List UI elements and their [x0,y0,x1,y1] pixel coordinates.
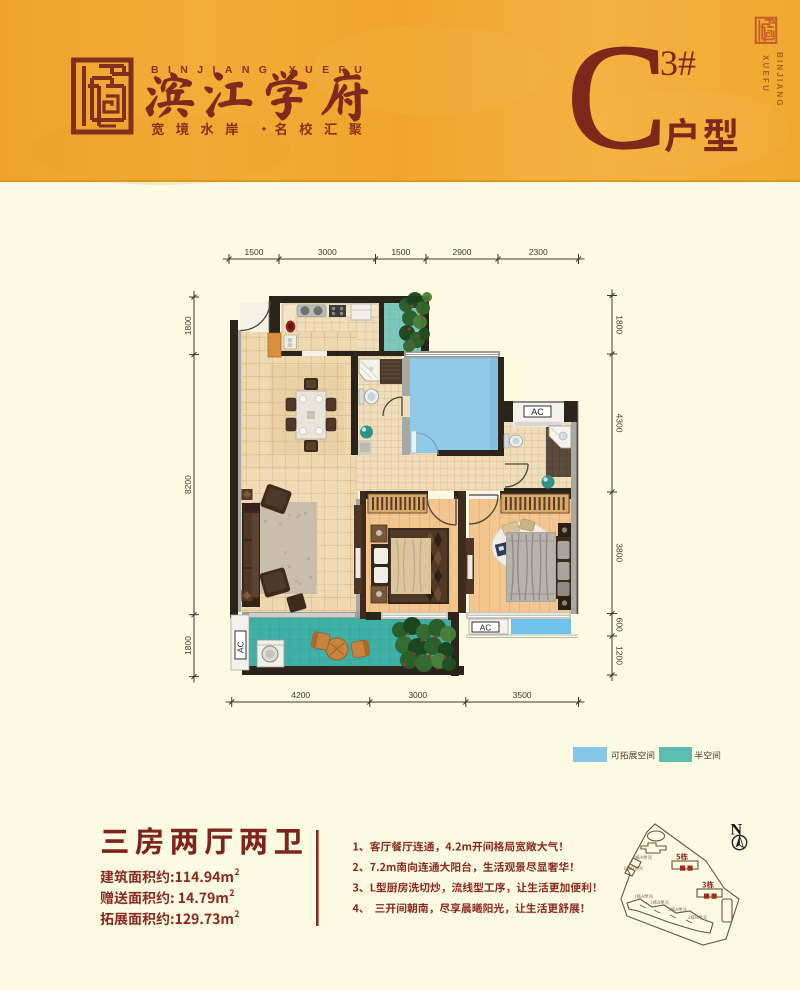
svg-text:1500: 1500 [391,247,410,257]
svg-text:1800: 1800 [615,315,625,334]
svg-text:3#: 3# [660,43,696,83]
svg-text:1800: 1800 [183,636,193,655]
svg-text:600: 600 [615,618,625,632]
svg-text:AC: AC [480,623,492,633]
svg-text:1800: 1800 [183,316,193,335]
svg-text:AC: AC [236,641,246,653]
svg-text:4200: 4200 [291,690,310,700]
svg-text:1200: 1200 [615,646,625,665]
svg-text:3500: 3500 [513,690,532,700]
svg-text:1500: 1500 [245,247,264,257]
svg-text:BINJIANG XUEFU: BINJIANG XUEFU [151,64,371,76]
svg-text:4300: 4300 [615,414,625,433]
svg-text:8200: 8200 [183,475,193,494]
svg-text:BINJIANG: BINJIANG [775,52,784,108]
svg-text:2300: 2300 [529,247,548,257]
svg-text:3800: 3800 [615,543,625,562]
svg-text:AC: AC [531,407,544,417]
svg-text:2900: 2900 [453,247,472,257]
svg-text:3000: 3000 [318,247,337,257]
svg-text:C: C [567,14,667,180]
svg-text:3000: 3000 [408,690,427,700]
svg-text:XUEFU: XUEFU [761,55,770,93]
